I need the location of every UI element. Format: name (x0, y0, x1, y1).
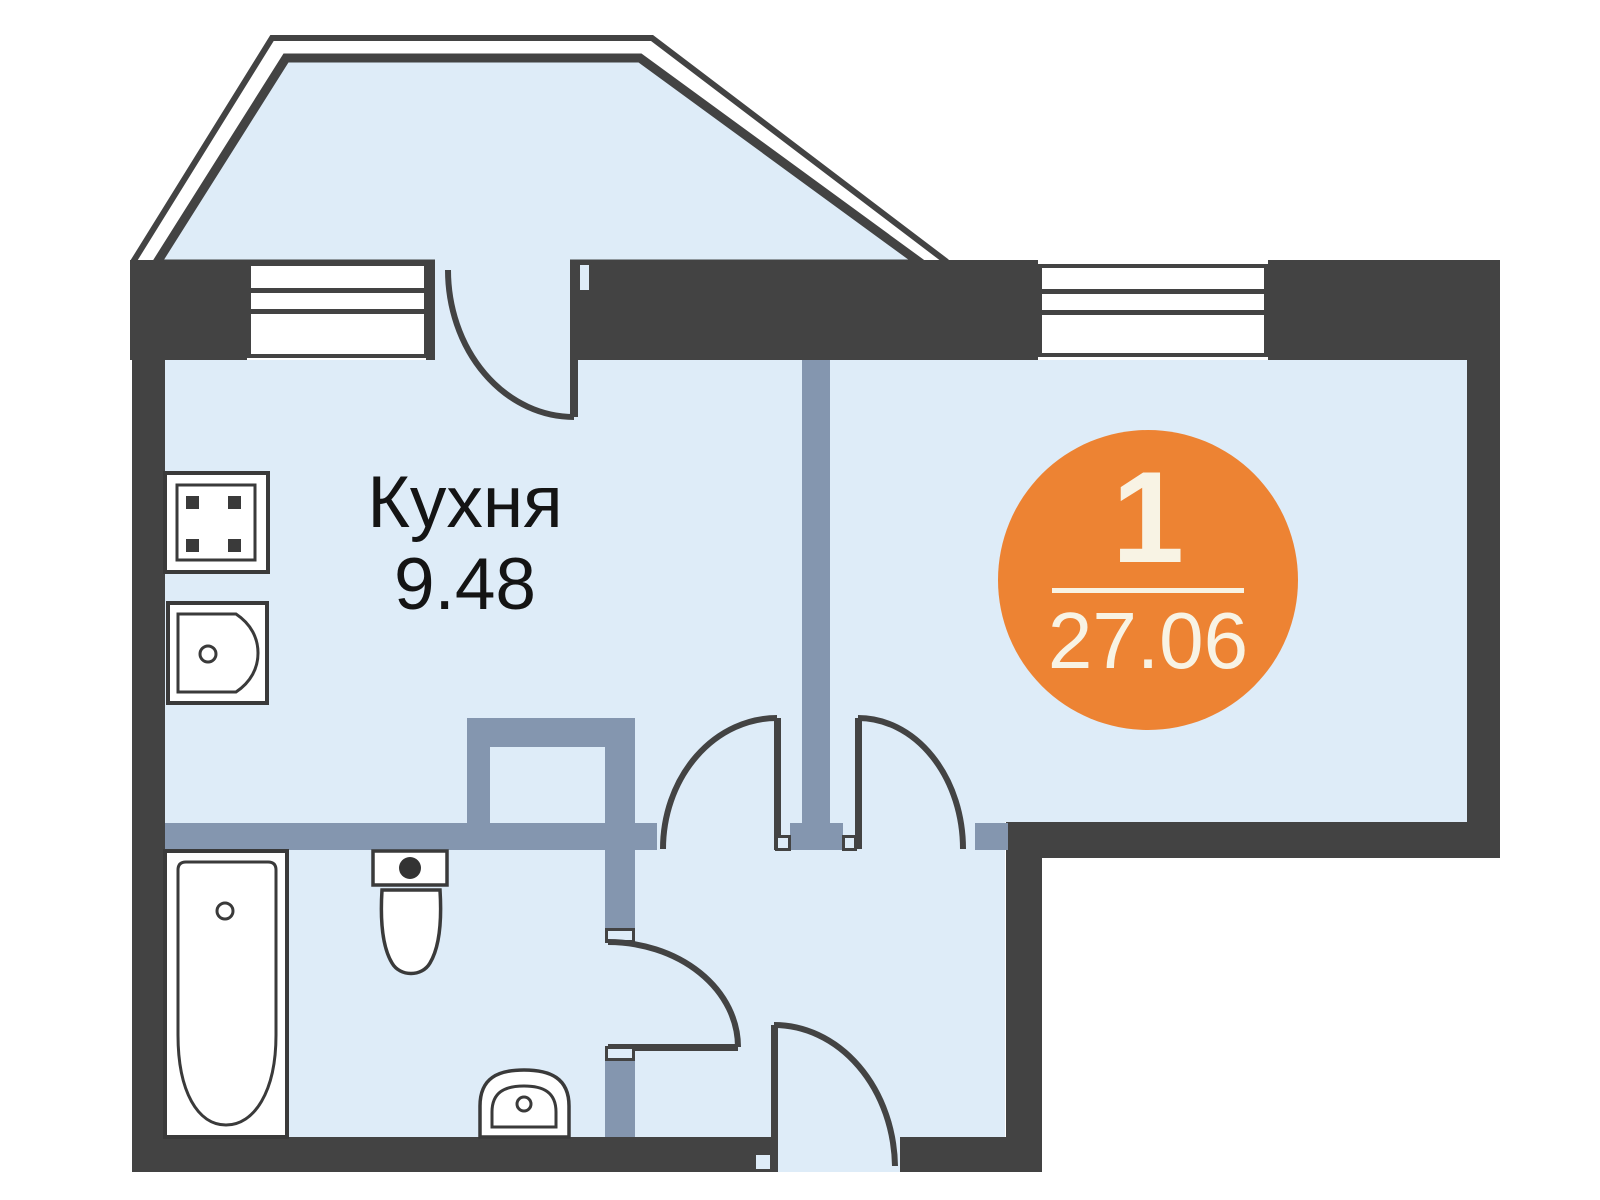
kitchen-door-swing-arc (663, 718, 777, 849)
toilet-flush-button (399, 857, 421, 879)
bathtub-icon (165, 851, 287, 1137)
stove-burner (186, 496, 199, 509)
toilet-bowl (381, 890, 440, 974)
bathroom-door-swing-arc (608, 942, 738, 1047)
bathtub-drain (217, 903, 233, 919)
kitchen-sink-icon (168, 603, 267, 703)
stove-burner (228, 496, 241, 509)
living-room-door-swing-arc (858, 718, 963, 849)
kitchen-label: Кухня 9.48 (280, 462, 650, 626)
total-area: 27.06 (1048, 601, 1248, 681)
balcony-door-swing-arc (448, 270, 574, 417)
entrance-door-swing-arc (774, 1025, 895, 1166)
badge-divider (1052, 588, 1244, 593)
stove-icon (165, 473, 268, 572)
doors-and-fixtures (0, 0, 1600, 1200)
stove-burner (186, 539, 199, 552)
stove-burner (228, 539, 241, 552)
floorplan-canvas: Кухня 9.48 1 27.06 (0, 0, 1600, 1200)
toilet-icon (373, 851, 447, 974)
apartment-info-badge: 1 27.06 (998, 430, 1298, 730)
kitchen-area: 9.48 (280, 544, 650, 626)
washbasin-drain (517, 1097, 531, 1111)
room-count: 1 (1112, 452, 1184, 582)
kitchen-name: Кухня (280, 462, 650, 544)
washbasin-icon (480, 1070, 569, 1137)
